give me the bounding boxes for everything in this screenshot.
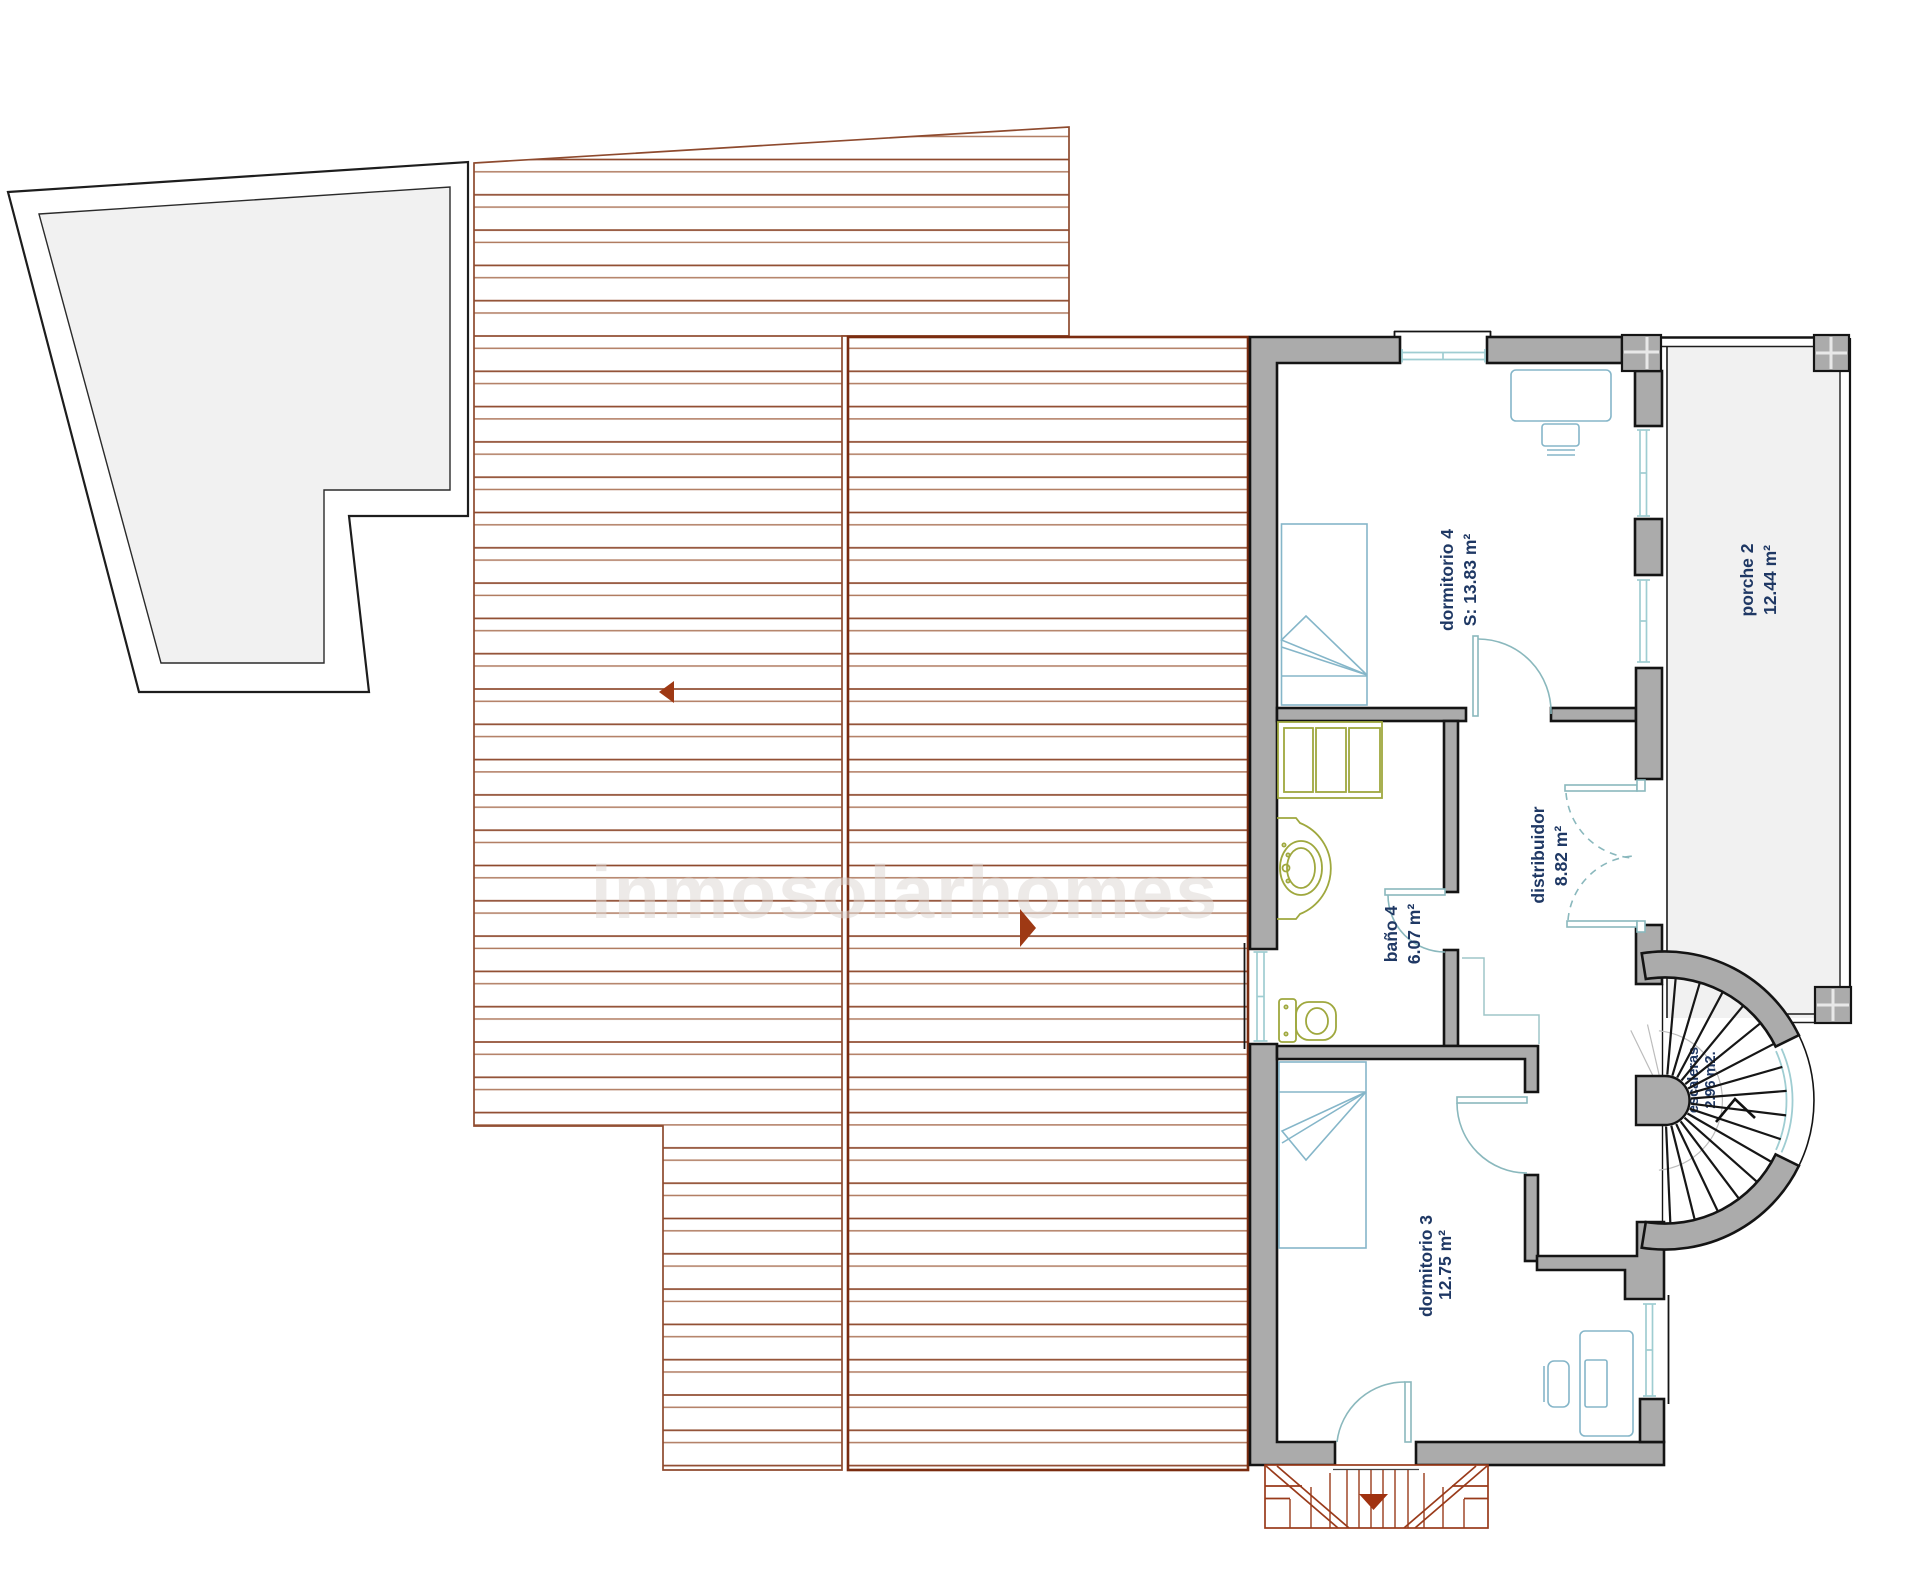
svg-text:distribuidor: distribuidor (1528, 806, 1548, 903)
svg-text:baño 4: baño 4 (1381, 906, 1401, 963)
svg-text:12.75 m²: 12.75 m² (1435, 1230, 1455, 1300)
svg-text:S: 13.83 m²: S: 13.83 m² (1460, 534, 1480, 627)
svg-text:dormitorio 3: dormitorio 3 (1416, 1215, 1436, 1317)
svg-text:dormitorio 4: dormitorio 4 (1437, 529, 1457, 631)
svg-text:porche 2: porche 2 (1737, 543, 1757, 616)
svg-text:inmosolarhomes: inmosolarhomes (591, 850, 1219, 934)
svg-text:6.07 m²: 6.07 m² (1404, 904, 1424, 964)
svg-text:8.82 m²: 8.82 m² (1551, 826, 1571, 886)
svg-text:12.44 m²: 12.44 m² (1760, 545, 1780, 615)
